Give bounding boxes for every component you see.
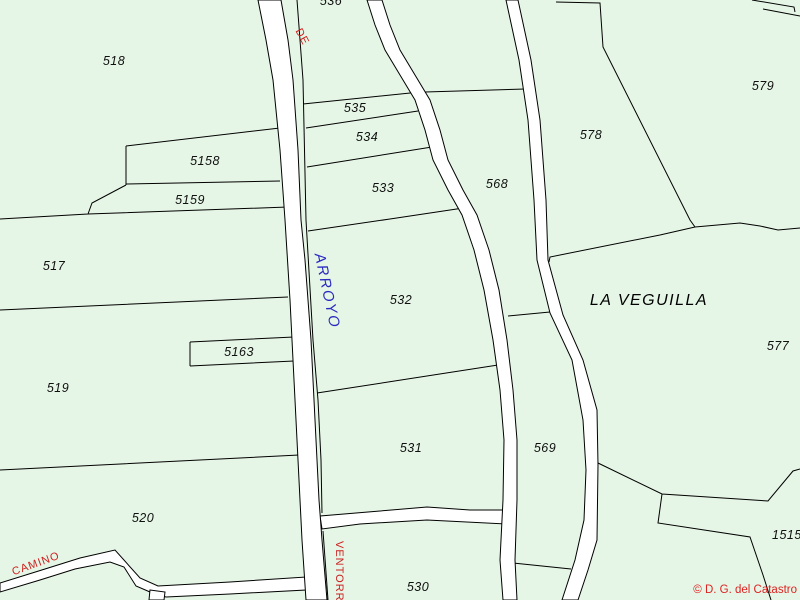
parcel-label-5158: 5158 xyxy=(190,154,220,168)
parcel-label-533: 533 xyxy=(372,181,394,195)
parcel-label-534: 534 xyxy=(356,130,378,144)
parcel-label-531: 531 xyxy=(400,441,422,455)
parcel-label-5163: 5163 xyxy=(224,345,254,359)
parcel-label-535: 535 xyxy=(344,101,366,115)
parcel-label-578: 578 xyxy=(580,128,602,142)
parcel-label-519: 519 xyxy=(47,381,69,395)
parcel-label-577: 577 xyxy=(767,339,789,353)
parcel-label-530: 530 xyxy=(407,580,429,594)
road-camino-stub xyxy=(149,590,165,600)
parcel-label-517: 517 xyxy=(43,259,65,273)
road-label-ventorrillo: VENTORRIL xyxy=(333,541,345,600)
place-name-la-veguilla: LA VEGUILLA xyxy=(590,292,708,310)
parcel-label-520: 520 xyxy=(132,511,154,525)
parcel-label-536: 536 xyxy=(320,0,342,8)
parcel-label-518: 518 xyxy=(103,54,125,68)
parcel-label-5159: 5159 xyxy=(175,193,205,207)
parcel-label-532: 532 xyxy=(390,293,412,307)
parcel-label-568: 568 xyxy=(486,177,508,191)
parcel-label-1515: 1515- xyxy=(772,528,800,542)
cadastral-map[interactable]: 518 536 535 534 533 568 578 579 5158 515… xyxy=(0,0,800,600)
parcel-label-579: 579 xyxy=(752,79,774,93)
parcel-label-569: 569 xyxy=(534,441,556,455)
copyright-notice: © D. G. del Catastro xyxy=(693,584,797,596)
